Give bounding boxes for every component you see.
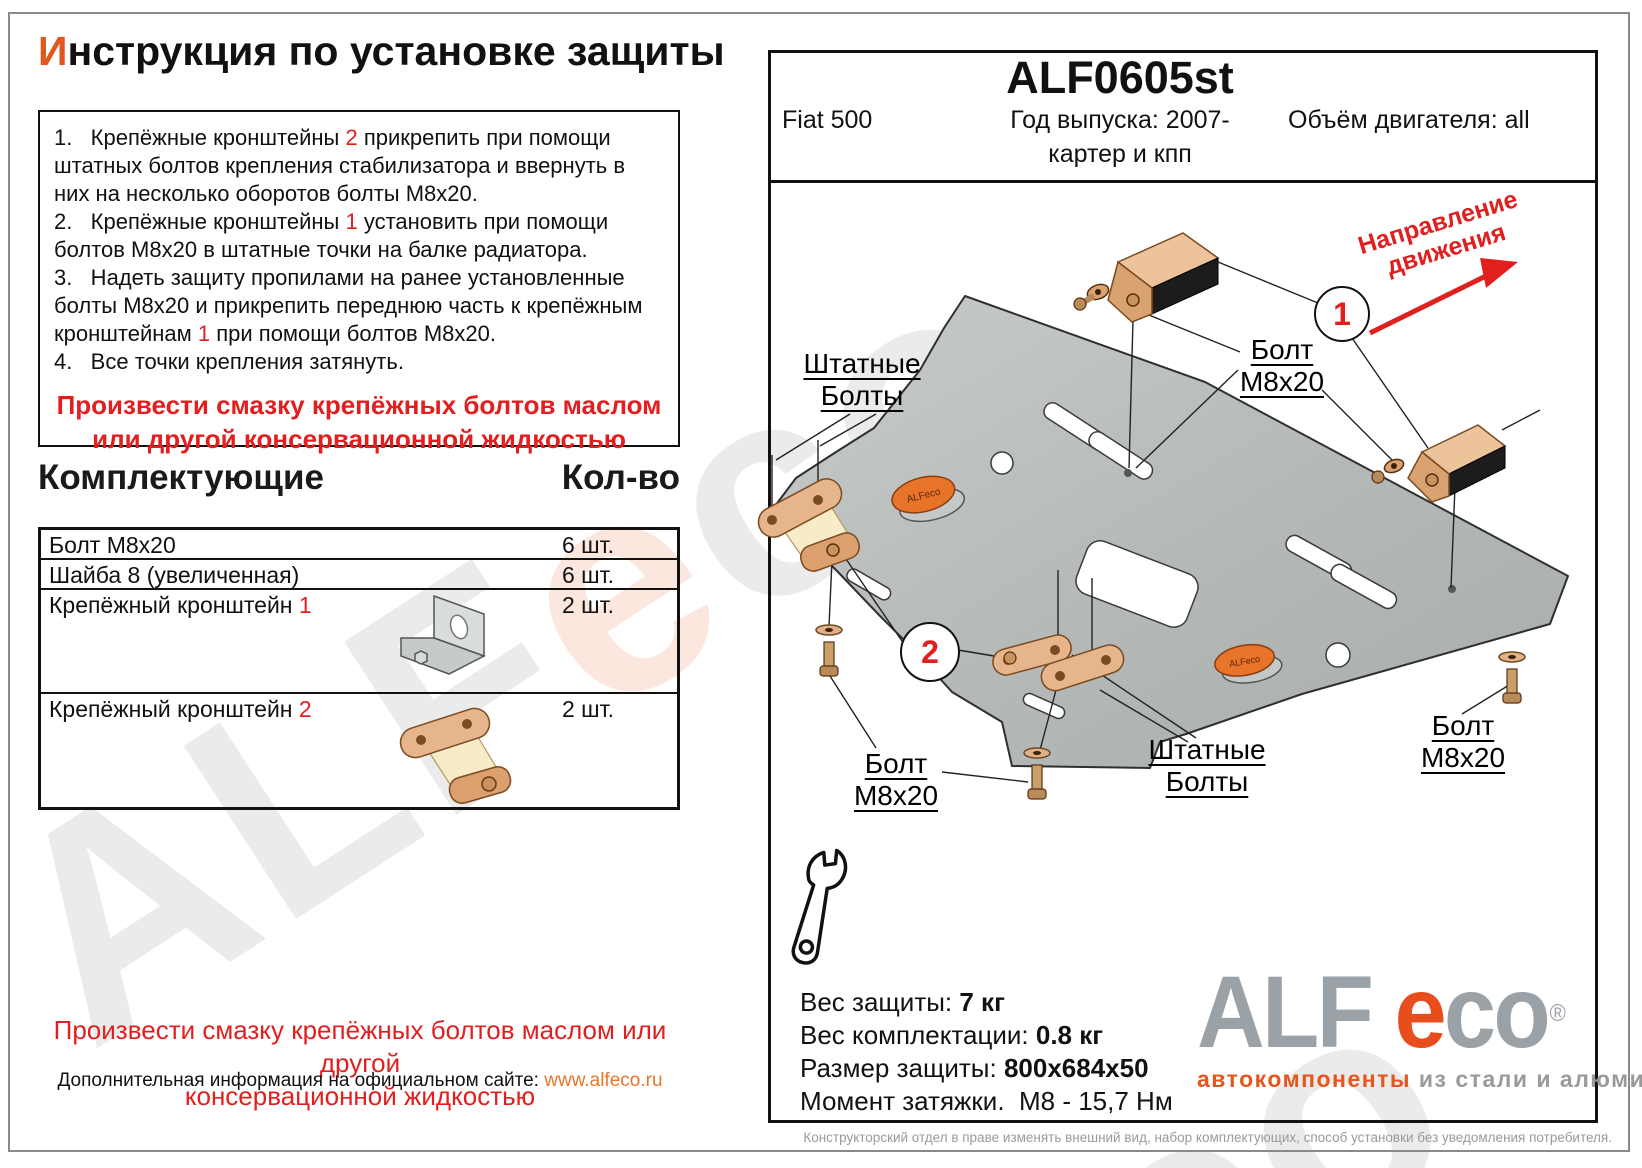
callout-1: 1: [1314, 286, 1370, 342]
spec-block: Вес защиты: 7 кг Вес комплектации: 0.8 к…: [800, 986, 1173, 1118]
step-2: 2. Крепёжные кронштейны 1 установить при…: [54, 208, 664, 264]
website-line: Дополнительная информация на официальном…: [40, 1070, 680, 1092]
website-link[interactable]: www.alfeco.ru: [544, 1070, 662, 1091]
car-model: Fiat 500: [782, 106, 872, 135]
spec-torque: Момент затяжки. М8 - 15,7 Нм: [800, 1085, 1173, 1118]
lubrication-warning-footer: Произвести смазку крепёжных болтов масло…: [40, 1014, 680, 1113]
table-row: Крепёжный кронштейн 2 2 шт.: [41, 694, 677, 811]
label-regular-bolts-top: ШтатныеБолты: [792, 348, 932, 412]
label-bolt-m8x20-bottom: БолтМ8х20: [836, 748, 956, 812]
table-row: Шайба 8 (увеличенная) 6 шт.: [41, 560, 677, 590]
step-4: 4. Все точки крепления затянуть.: [54, 348, 664, 376]
label-bolt-m8x20-top: БолтМ8х20: [1212, 334, 1352, 398]
brand-tagline: автокомпоненты из стали и алюминия: [1197, 1066, 1587, 1093]
installation-steps-box: 1. Крепёжные кронштейны 2 прикрепить при…: [38, 110, 680, 447]
bracket-1-icon: [389, 594, 519, 692]
instruction-sheet: ALFeco ALFeco Инструкция по установке за…: [0, 0, 1642, 1168]
callout-2: 2: [900, 622, 960, 682]
step-3: 3. Надеть защиту пропилами на ранее уста…: [54, 264, 664, 348]
table-row: Болт М8х20 6 шт.: [41, 530, 677, 560]
page-title: Инструкция по установке защиты: [38, 28, 725, 75]
components-heading: Комплектующие: [38, 458, 324, 498]
label-bolt-m8x20-right: БолтМ8х20: [1398, 710, 1528, 774]
spec-kit-weight: Вес комплектации: 0.8 кг: [800, 1019, 1173, 1052]
model-year: Год выпуска: 2007-: [985, 106, 1255, 135]
step-1: 1. Крепёжные кронштейны 2 прикрепить при…: [54, 124, 664, 208]
part-code: ALF0605st: [955, 52, 1285, 104]
bracket-2-icon: [391, 700, 541, 808]
engine-volume: Объём двигателя: all: [1288, 106, 1538, 135]
components-table: Болт М8х20 6 шт. Шайба 8 (увеличенная) 6…: [38, 527, 680, 810]
design-disclaimer: Конструкторский отдел в праве изменять в…: [800, 1130, 1612, 1145]
coverage: картер и кпп: [985, 140, 1255, 169]
alfeco-logo: ALF eco® автокомпоненты из стали и алюми…: [1197, 962, 1587, 1093]
lubrication-warning: Произвести смазку крепёжных болтов масло…: [54, 388, 664, 456]
table-row: Крепёжный кронштейн 1 2 шт.: [41, 590, 677, 694]
registered-mark: ®: [1550, 964, 1564, 1064]
quantity-heading: Кол-во: [562, 458, 680, 498]
label-regular-bolts-bottom: ШтатныеБолты: [1132, 734, 1282, 798]
spec-weight: Вес защиты: 7 кг: [800, 986, 1173, 1019]
spec-size: Размер защиты: 800х684х50: [800, 1052, 1173, 1085]
